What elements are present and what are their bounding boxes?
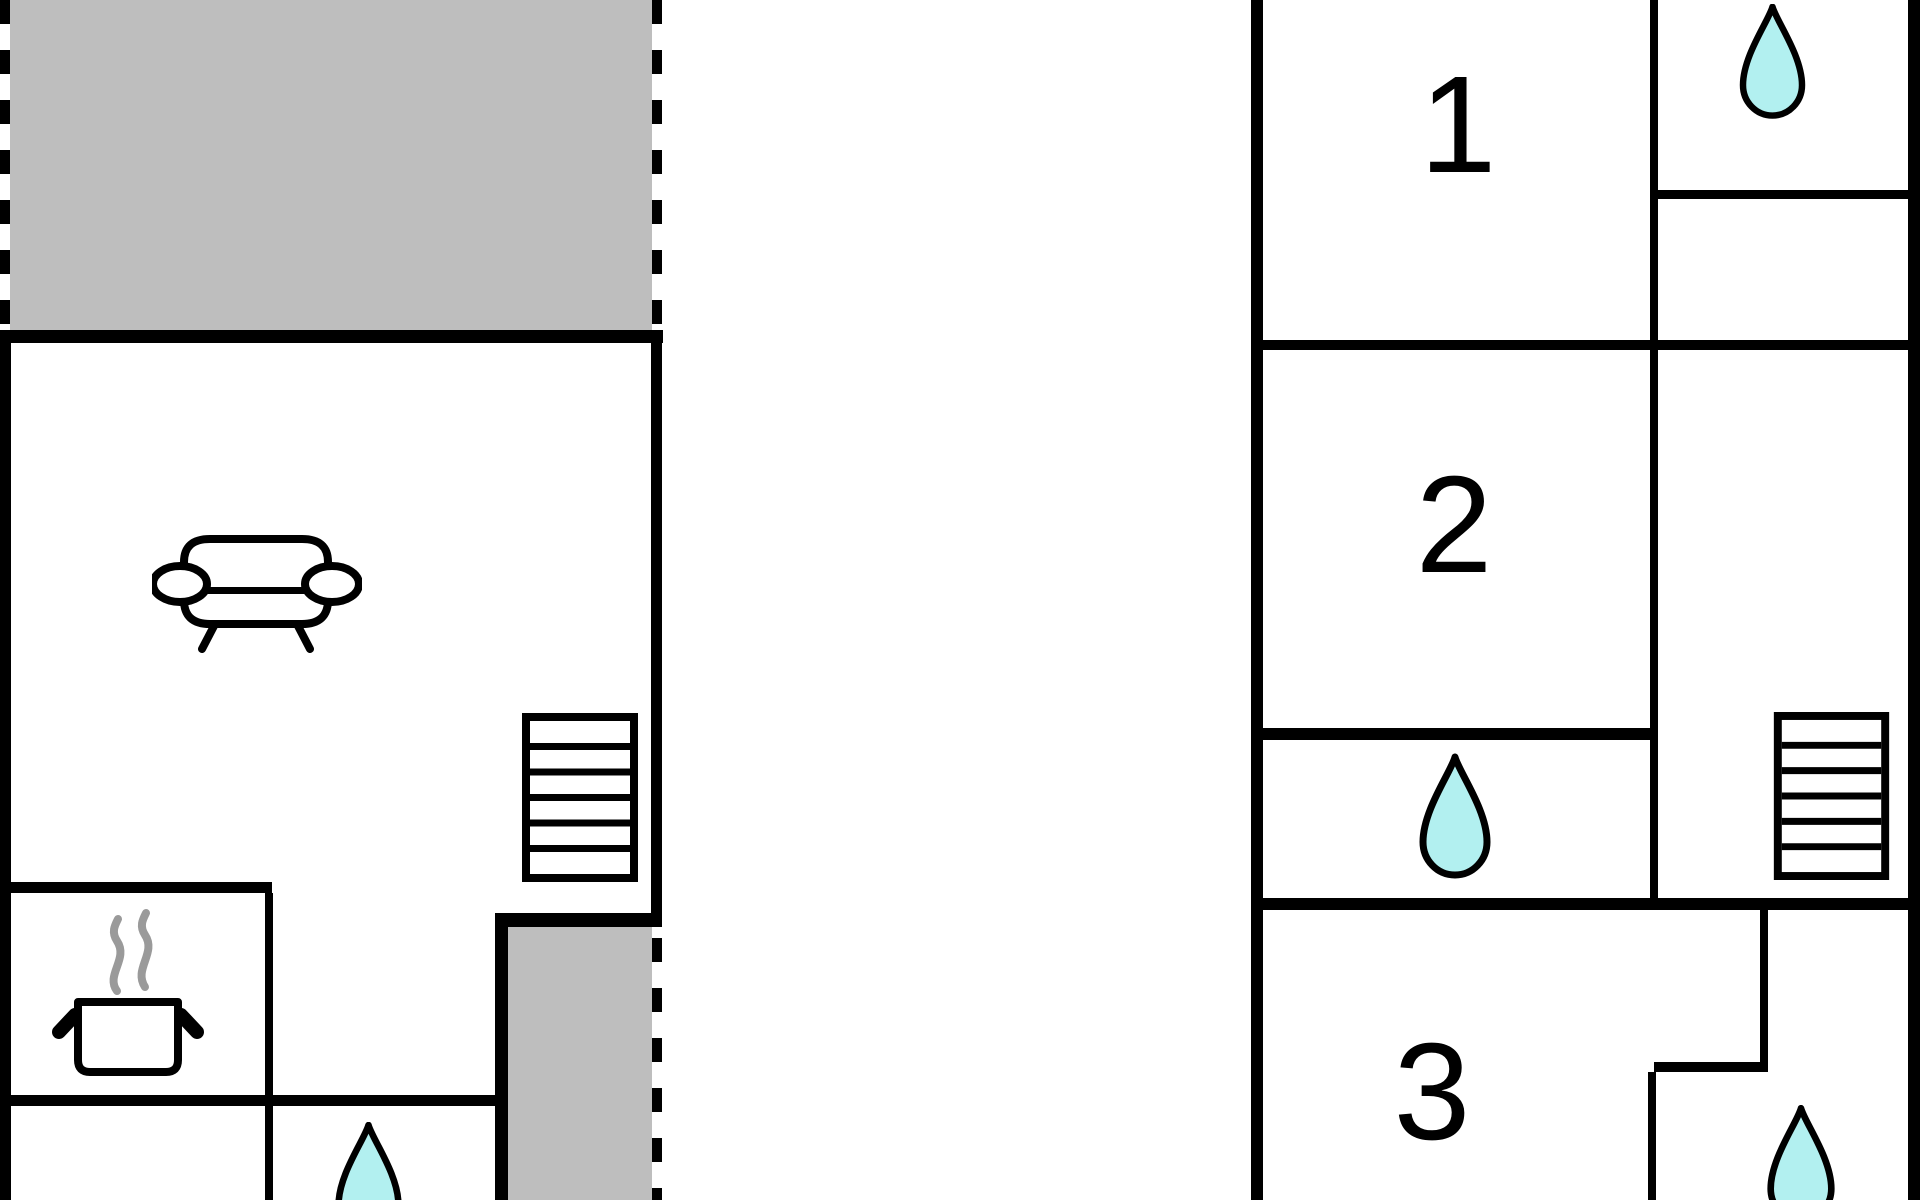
room-label-1: 1: [1420, 56, 1497, 194]
wall-terrace2-top: [495, 913, 662, 927]
wall-left-outer: [0, 343, 11, 1200]
wall-kitchen-divider: [265, 893, 273, 1200]
water-drop-icon: [1765, 1105, 1837, 1200]
terrace-boundary-dashed-right-bottom: [652, 938, 662, 1200]
wall-upper-left-outer: [1251, 0, 1263, 1200]
wall-right-living: [651, 343, 662, 927]
room-label-2: 2: [1416, 456, 1493, 594]
wall-kitchen-top: [11, 882, 272, 893]
wall-bathroom3-jog-horizontal: [1654, 1062, 1768, 1072]
stairs-icon: [1773, 712, 1890, 880]
sofa-icon: [152, 534, 362, 656]
cooking-pot-icon: [45, 895, 220, 1080]
floor-plan-canvas: 1 2 3: [0, 0, 1920, 1200]
wall-room3-top: [1251, 898, 1920, 910]
terrace-area-bottom-right: [508, 927, 652, 1200]
wall-upper-middle-vertical: [1650, 0, 1658, 910]
wall-bathroom-top: [0, 1095, 495, 1106]
stairs-icon: [522, 713, 638, 882]
wall-terrace2-left: [495, 927, 508, 1200]
wall-bathroom3-jog-vertical-lower: [1648, 1072, 1656, 1200]
terrace-boundary-dashed-left: [0, 0, 10, 333]
wall-room1-room2-divider: [1263, 340, 1908, 350]
water-drop-icon: [1417, 753, 1493, 883]
terrace-area-top: [10, 0, 652, 332]
water-drop-icon: [1735, 4, 1810, 122]
wall-upper-right-outer: [1908, 0, 1920, 1200]
wall-terrace-bottom: [0, 330, 663, 343]
wall-bathroom3-jog-vertical-upper: [1760, 910, 1768, 1070]
room-label-3: 3: [1394, 1023, 1471, 1161]
terrace-boundary-dashed-right-top: [652, 0, 662, 330]
wall-bathroom1-bottom: [1658, 190, 1908, 199]
wall-room2-bathroom2-divider: [1263, 728, 1658, 740]
water-drop-icon: [333, 1122, 404, 1200]
